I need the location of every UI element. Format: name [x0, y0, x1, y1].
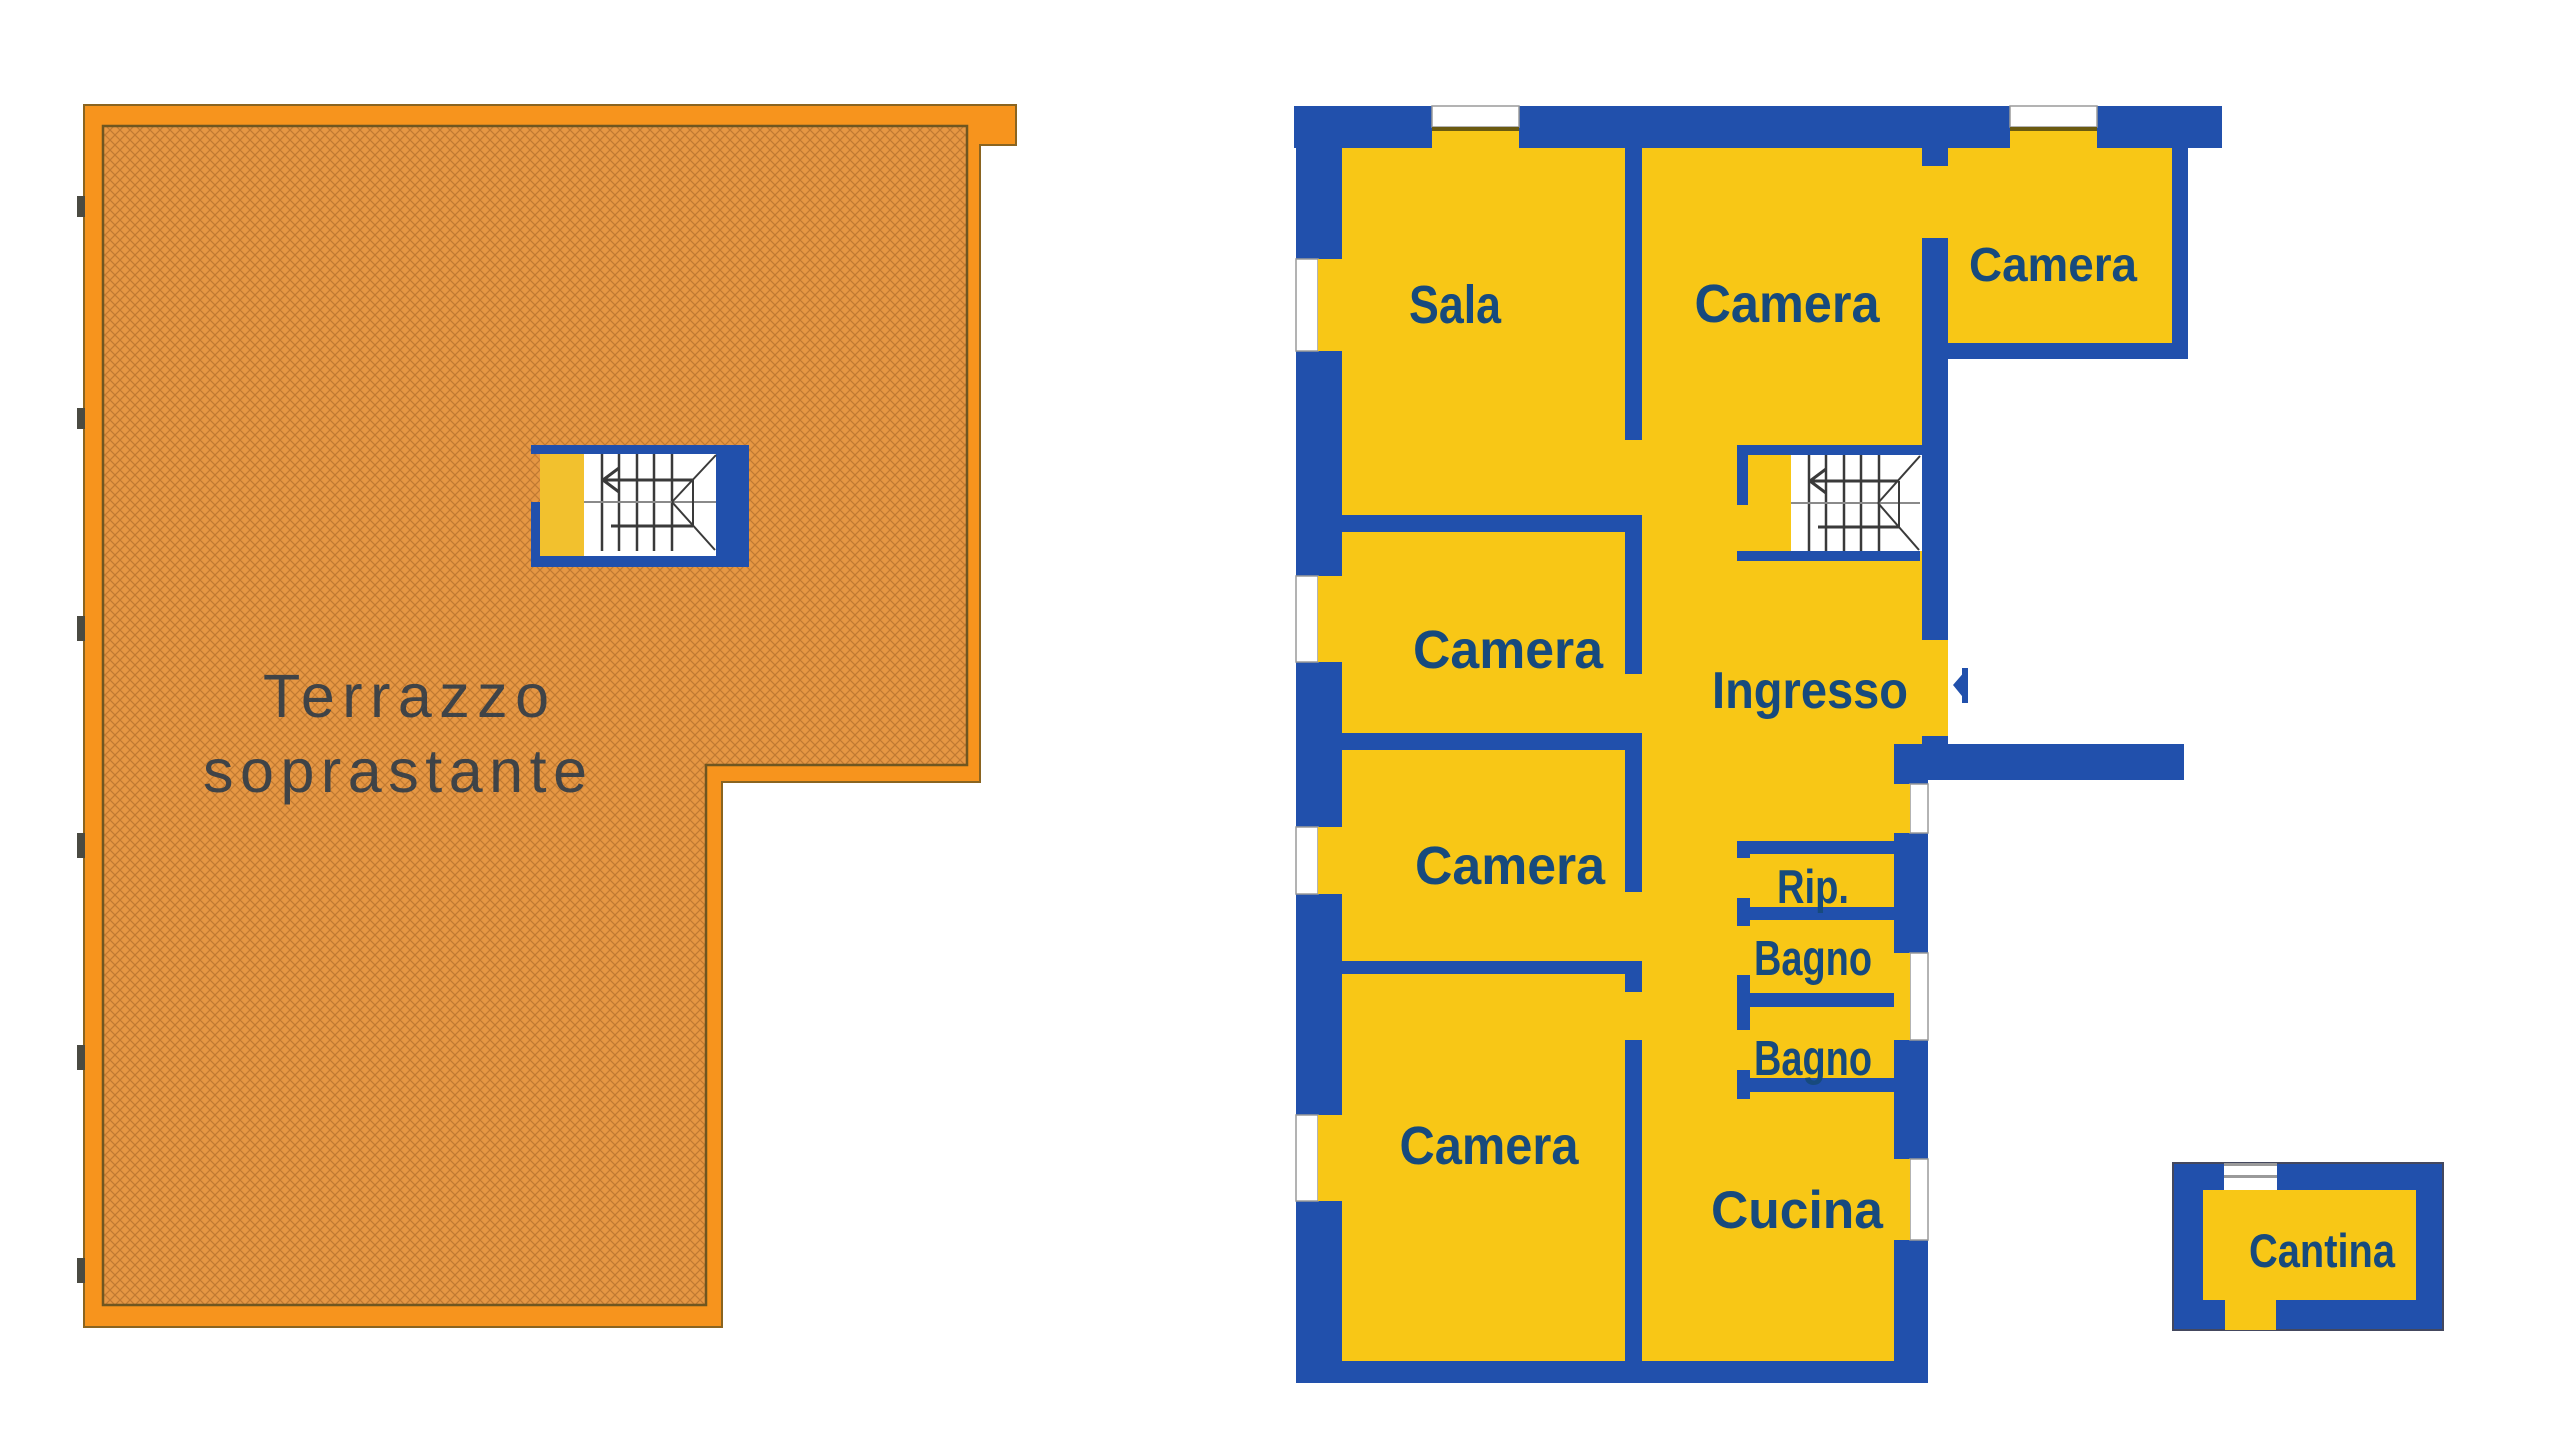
svg-text:Cantina: Cantina [2249, 1224, 2396, 1277]
svg-text:Camera: Camera [1413, 620, 1604, 680]
svg-text:Camera: Camera [1969, 239, 2137, 292]
svg-text:Cucina: Cucina [1711, 1181, 1884, 1240]
svg-text:Sala: Sala [1409, 275, 1502, 335]
svg-text:Bagno: Bagno [1754, 932, 1872, 986]
svg-text:Bagno: Bagno [1754, 1032, 1872, 1086]
svg-text:Ingresso: Ingresso [1712, 662, 1908, 720]
svg-text:Terrazzo: Terrazzo [263, 662, 549, 730]
svg-text:Camera: Camera [1415, 836, 1606, 896]
svg-text:Camera: Camera [1695, 274, 1881, 334]
svg-text:Camera: Camera [1400, 1116, 1580, 1176]
svg-text:soprastante: soprastante [203, 737, 587, 805]
svg-text:Rip.: Rip. [1777, 860, 1849, 913]
